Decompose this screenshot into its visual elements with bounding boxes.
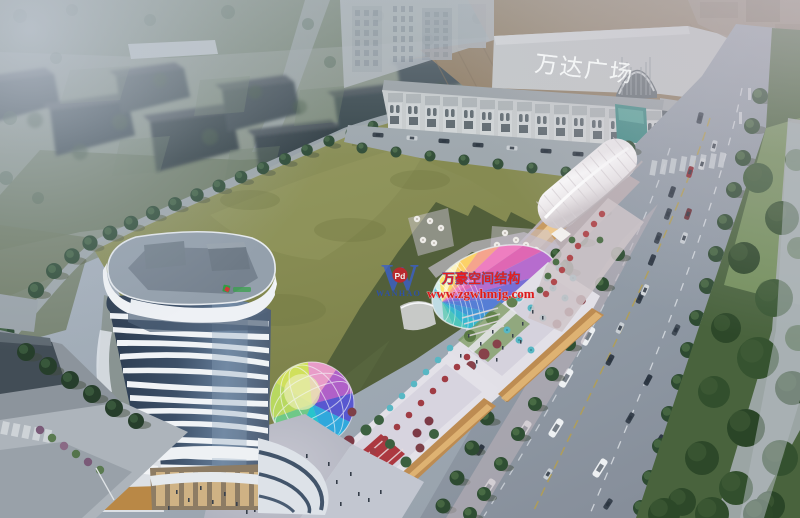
svg-text:WANHAO: WANHAO [376,289,421,298]
svg-text:www.zgwhmjg.com: www.zgwhmjg.com [427,286,535,301]
svg-text:万豪空间结构: 万豪空间结构 [441,271,521,286]
svg-text:Pd: Pd [395,271,406,281]
